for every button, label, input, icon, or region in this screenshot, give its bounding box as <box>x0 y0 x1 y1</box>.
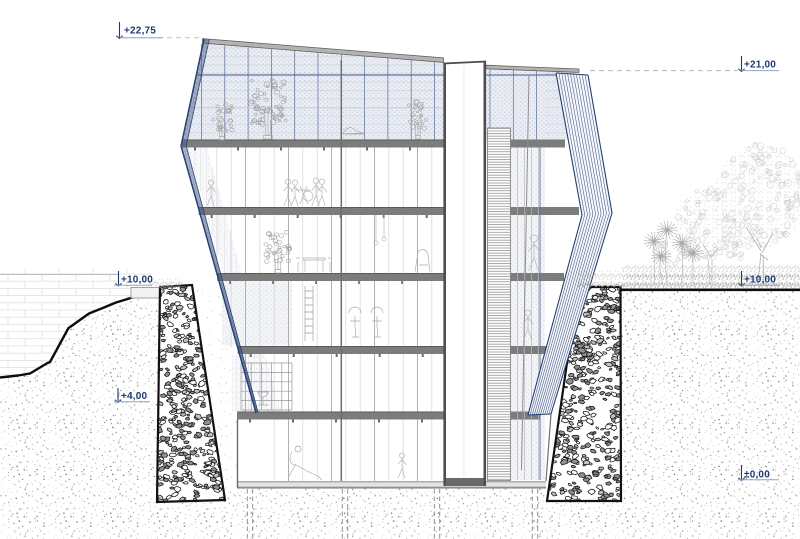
svg-text:+21,00: +21,00 <box>744 60 776 71</box>
svg-text:±0,00: ±0,00 <box>744 470 770 481</box>
svg-text:+4,00: +4,00 <box>121 391 148 402</box>
svg-text:+10,00: +10,00 <box>744 275 776 286</box>
svg-text:+10,00: +10,00 <box>121 275 153 286</box>
svg-text:+22,75: +22,75 <box>124 26 156 37</box>
